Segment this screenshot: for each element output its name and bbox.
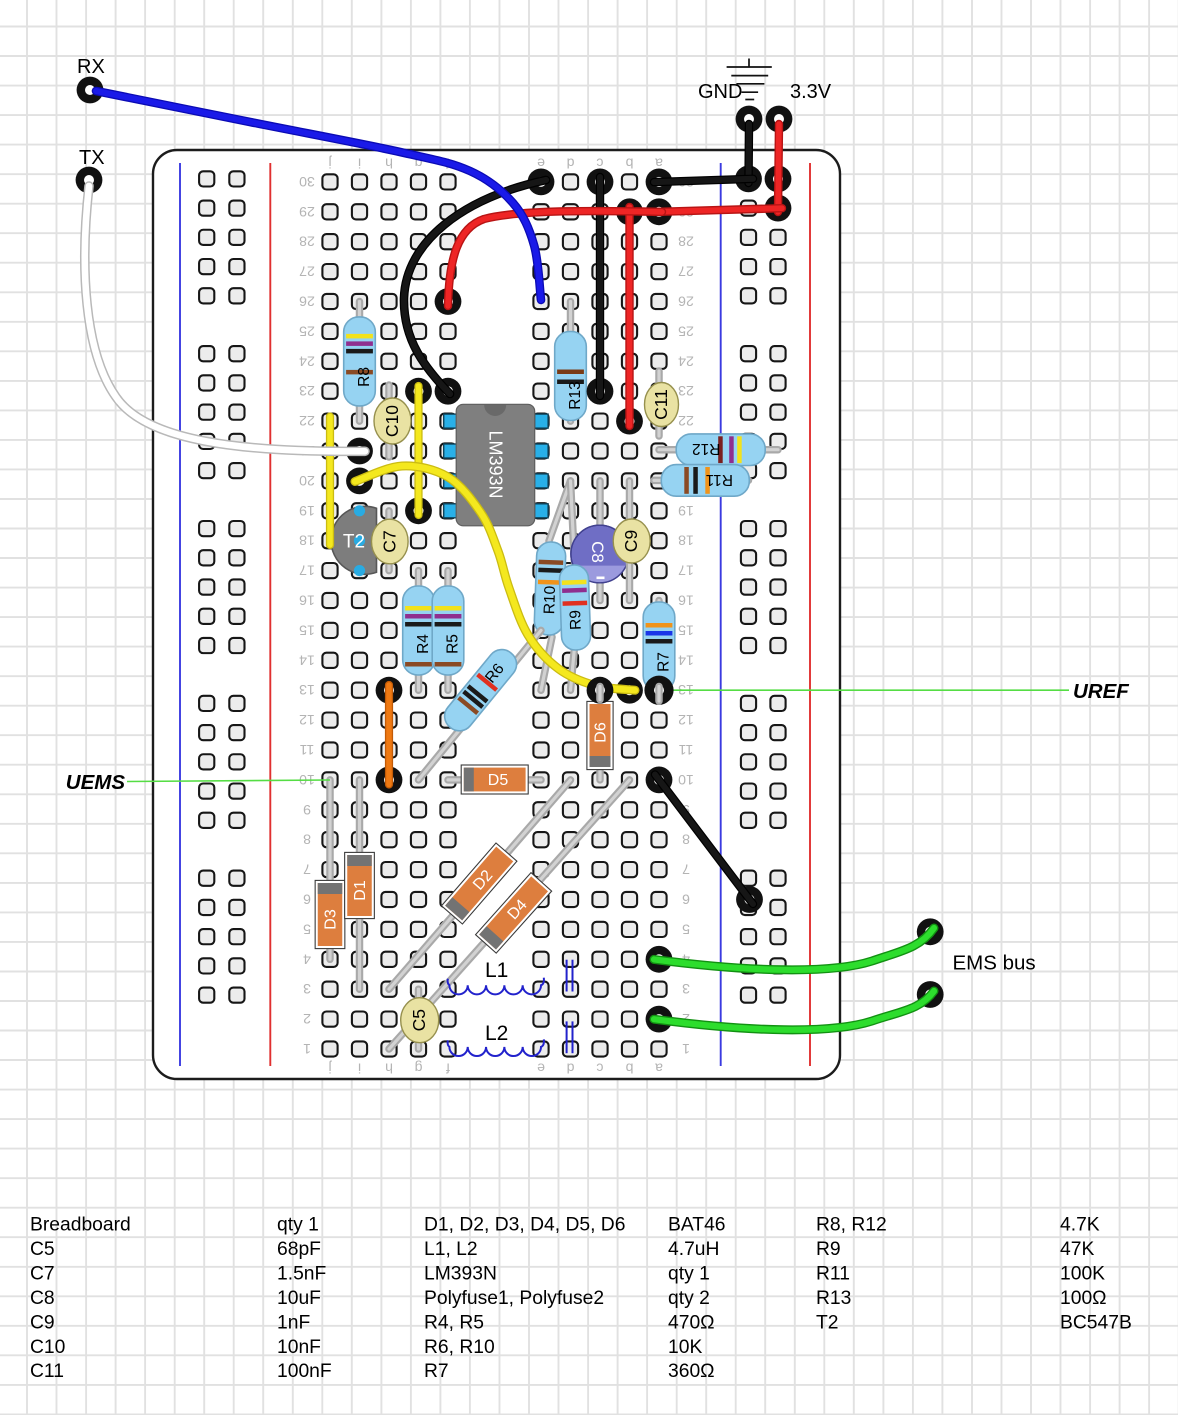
svg-text:13: 13 [299, 681, 315, 697]
svg-text:4.7uH: 4.7uH [668, 1239, 719, 1260]
svg-text:R5: R5 [445, 634, 462, 654]
svg-text:L1: L1 [485, 959, 508, 982]
svg-text:2: 2 [303, 1010, 311, 1026]
svg-text:22: 22 [299, 412, 315, 428]
svg-text:16: 16 [678, 592, 694, 608]
svg-text:24: 24 [299, 352, 315, 368]
svg-text:qty 2: qty 2 [668, 1288, 710, 1309]
svg-text:i: i [358, 1060, 361, 1076]
svg-text:Polyfuse1, Polyfuse2: Polyfuse1, Polyfuse2 [424, 1288, 604, 1309]
svg-text:RX: RX [77, 56, 105, 78]
svg-text:16: 16 [299, 592, 315, 608]
svg-text:R13: R13 [567, 381, 584, 409]
svg-text:R8: R8 [356, 367, 373, 387]
svg-text:e: e [537, 1060, 545, 1076]
svg-text:18: 18 [678, 532, 694, 548]
svg-text:b: b [625, 1060, 633, 1076]
svg-text:28: 28 [678, 233, 694, 249]
svg-text:D1: D1 [352, 880, 369, 901]
svg-text:EMS bus: EMS bus [953, 952, 1036, 975]
svg-text:24: 24 [678, 352, 694, 368]
svg-text:19: 19 [678, 502, 694, 518]
svg-text:5: 5 [682, 920, 690, 936]
svg-text:19: 19 [299, 502, 315, 518]
svg-text:17: 17 [678, 562, 694, 578]
svg-text:i: i [358, 155, 361, 171]
svg-text:1nF: 1nF [277, 1312, 310, 1333]
svg-text:D6: D6 [593, 722, 610, 743]
svg-text:LM393N: LM393N [486, 430, 506, 498]
svg-text:6: 6 [303, 891, 311, 907]
svg-text:C11: C11 [30, 1361, 64, 1382]
svg-text:C8: C8 [30, 1288, 55, 1309]
svg-text:D3: D3 [323, 909, 340, 930]
svg-text:20: 20 [299, 472, 315, 488]
svg-text:C5: C5 [30, 1239, 55, 1260]
svg-text:10uF: 10uF [277, 1288, 321, 1309]
svg-text:5: 5 [303, 920, 311, 936]
svg-text:15: 15 [299, 621, 315, 637]
svg-text:11: 11 [679, 741, 694, 757]
svg-text:a: a [655, 1060, 663, 1076]
svg-text:10nF: 10nF [277, 1337, 321, 1358]
svg-text:29: 29 [299, 203, 315, 219]
svg-text:qty 1: qty 1 [668, 1263, 710, 1284]
svg-text:LM393N: LM393N [424, 1263, 497, 1284]
svg-text:d: d [567, 1060, 575, 1076]
svg-text:C11: C11 [651, 389, 671, 420]
svg-text:GND: GND [698, 81, 742, 103]
svg-text:R8, R12: R8, R12 [816, 1215, 887, 1236]
svg-text:23: 23 [299, 382, 315, 398]
svg-text:4: 4 [303, 950, 311, 966]
svg-text:26: 26 [299, 293, 315, 309]
svg-text:C9: C9 [621, 530, 641, 552]
svg-text:18: 18 [299, 532, 315, 548]
svg-text:R4: R4 [415, 634, 432, 654]
svg-text:R7: R7 [656, 652, 673, 672]
svg-text:h: h [385, 155, 393, 171]
svg-text:470Ω: 470Ω [668, 1312, 715, 1333]
svg-text:h: h [385, 1060, 393, 1076]
svg-text:qty 1: qty 1 [277, 1215, 319, 1236]
svg-text:100K: 100K [1060, 1263, 1105, 1284]
svg-text:T2: T2 [816, 1312, 839, 1333]
svg-text:D5: D5 [488, 772, 509, 789]
svg-text:C8: C8 [588, 541, 607, 563]
svg-text:C7: C7 [379, 530, 399, 552]
svg-text:9: 9 [303, 801, 311, 817]
svg-text:1.5nF: 1.5nF [277, 1263, 326, 1284]
svg-text:7: 7 [303, 861, 311, 877]
svg-text:15: 15 [678, 621, 694, 637]
svg-text:22: 22 [678, 412, 694, 428]
svg-text:UEMS: UEMS [66, 771, 126, 794]
svg-text:3: 3 [303, 980, 311, 996]
svg-text:BC547B: BC547B [1060, 1312, 1132, 1333]
svg-text:27: 27 [678, 263, 694, 279]
svg-text:b: b [625, 155, 633, 171]
svg-text:1: 1 [682, 1040, 690, 1056]
svg-text:c: c [596, 1060, 603, 1076]
svg-text:17: 17 [299, 562, 315, 578]
svg-text:C7: C7 [30, 1263, 55, 1284]
svg-text:c: c [596, 155, 603, 171]
svg-text:L1, L2: L1, L2 [424, 1239, 478, 1260]
svg-text:f: f [446, 1060, 450, 1076]
svg-text:100nF: 100nF [277, 1361, 332, 1382]
svg-text:C10: C10 [382, 405, 402, 437]
svg-text:a: a [655, 155, 663, 171]
svg-text:11: 11 [300, 741, 315, 757]
svg-text:T2: T2 [343, 531, 365, 552]
svg-text:14: 14 [299, 651, 315, 667]
svg-text:14: 14 [678, 651, 694, 667]
svg-text:10K: 10K [668, 1337, 702, 1358]
svg-text:10: 10 [678, 771, 694, 787]
svg-text:R12: R12 [692, 440, 720, 457]
svg-text:BAT46: BAT46 [668, 1215, 726, 1236]
svg-text:R13: R13 [816, 1288, 851, 1309]
svg-text:47K: 47K [1060, 1239, 1094, 1260]
svg-text:7: 7 [682, 861, 690, 877]
svg-text:68pF: 68pF [277, 1239, 321, 1260]
svg-text:100Ω: 100Ω [1060, 1288, 1107, 1309]
svg-text:3.3V: 3.3V [790, 81, 832, 103]
svg-text:R11: R11 [816, 1263, 850, 1284]
svg-text:12: 12 [678, 711, 694, 727]
svg-text:Breadboard: Breadboard [30, 1215, 131, 1236]
svg-text:R10: R10 [541, 585, 559, 614]
svg-text:28: 28 [299, 233, 315, 249]
svg-text:D1, D2, D3, D4, D5, D6: D1, D2, D3, D4, D5, D6 [424, 1215, 625, 1236]
svg-text:g: g [415, 1060, 423, 1076]
svg-text:R9: R9 [816, 1239, 841, 1260]
svg-text:26: 26 [678, 293, 694, 309]
svg-text:27: 27 [299, 263, 315, 279]
svg-text:10: 10 [299, 771, 315, 787]
svg-text:R4, R5: R4, R5 [424, 1312, 484, 1333]
svg-text:R9: R9 [567, 610, 585, 630]
svg-text:R11: R11 [706, 471, 733, 488]
svg-text:8: 8 [303, 831, 311, 847]
svg-text:25: 25 [678, 322, 694, 338]
svg-text:e: e [537, 155, 545, 171]
svg-text:j: j [328, 1060, 332, 1076]
svg-text:30: 30 [299, 173, 315, 189]
svg-text:R7: R7 [424, 1361, 449, 1382]
svg-text:3: 3 [682, 980, 690, 996]
svg-text:4.7K: 4.7K [1060, 1215, 1100, 1236]
svg-text:L2: L2 [485, 1022, 508, 1045]
svg-text:1: 1 [303, 1040, 311, 1056]
svg-text:25: 25 [299, 322, 315, 338]
svg-text:d: d [567, 155, 575, 171]
svg-text:C10: C10 [30, 1337, 65, 1358]
svg-text:360Ω: 360Ω [668, 1361, 715, 1382]
svg-text:8: 8 [682, 831, 690, 847]
svg-text:R6, R10: R6, R10 [424, 1337, 495, 1358]
svg-text:13: 13 [678, 681, 694, 697]
svg-text:TX: TX [79, 147, 105, 169]
svg-text:j: j [328, 155, 332, 171]
svg-text:C9: C9 [30, 1312, 55, 1333]
svg-text:C5: C5 [409, 1009, 429, 1031]
svg-text:6: 6 [682, 891, 690, 907]
svg-text:12: 12 [299, 711, 315, 727]
svg-text:23: 23 [678, 382, 694, 398]
svg-text:UREF: UREF [1073, 680, 1129, 703]
